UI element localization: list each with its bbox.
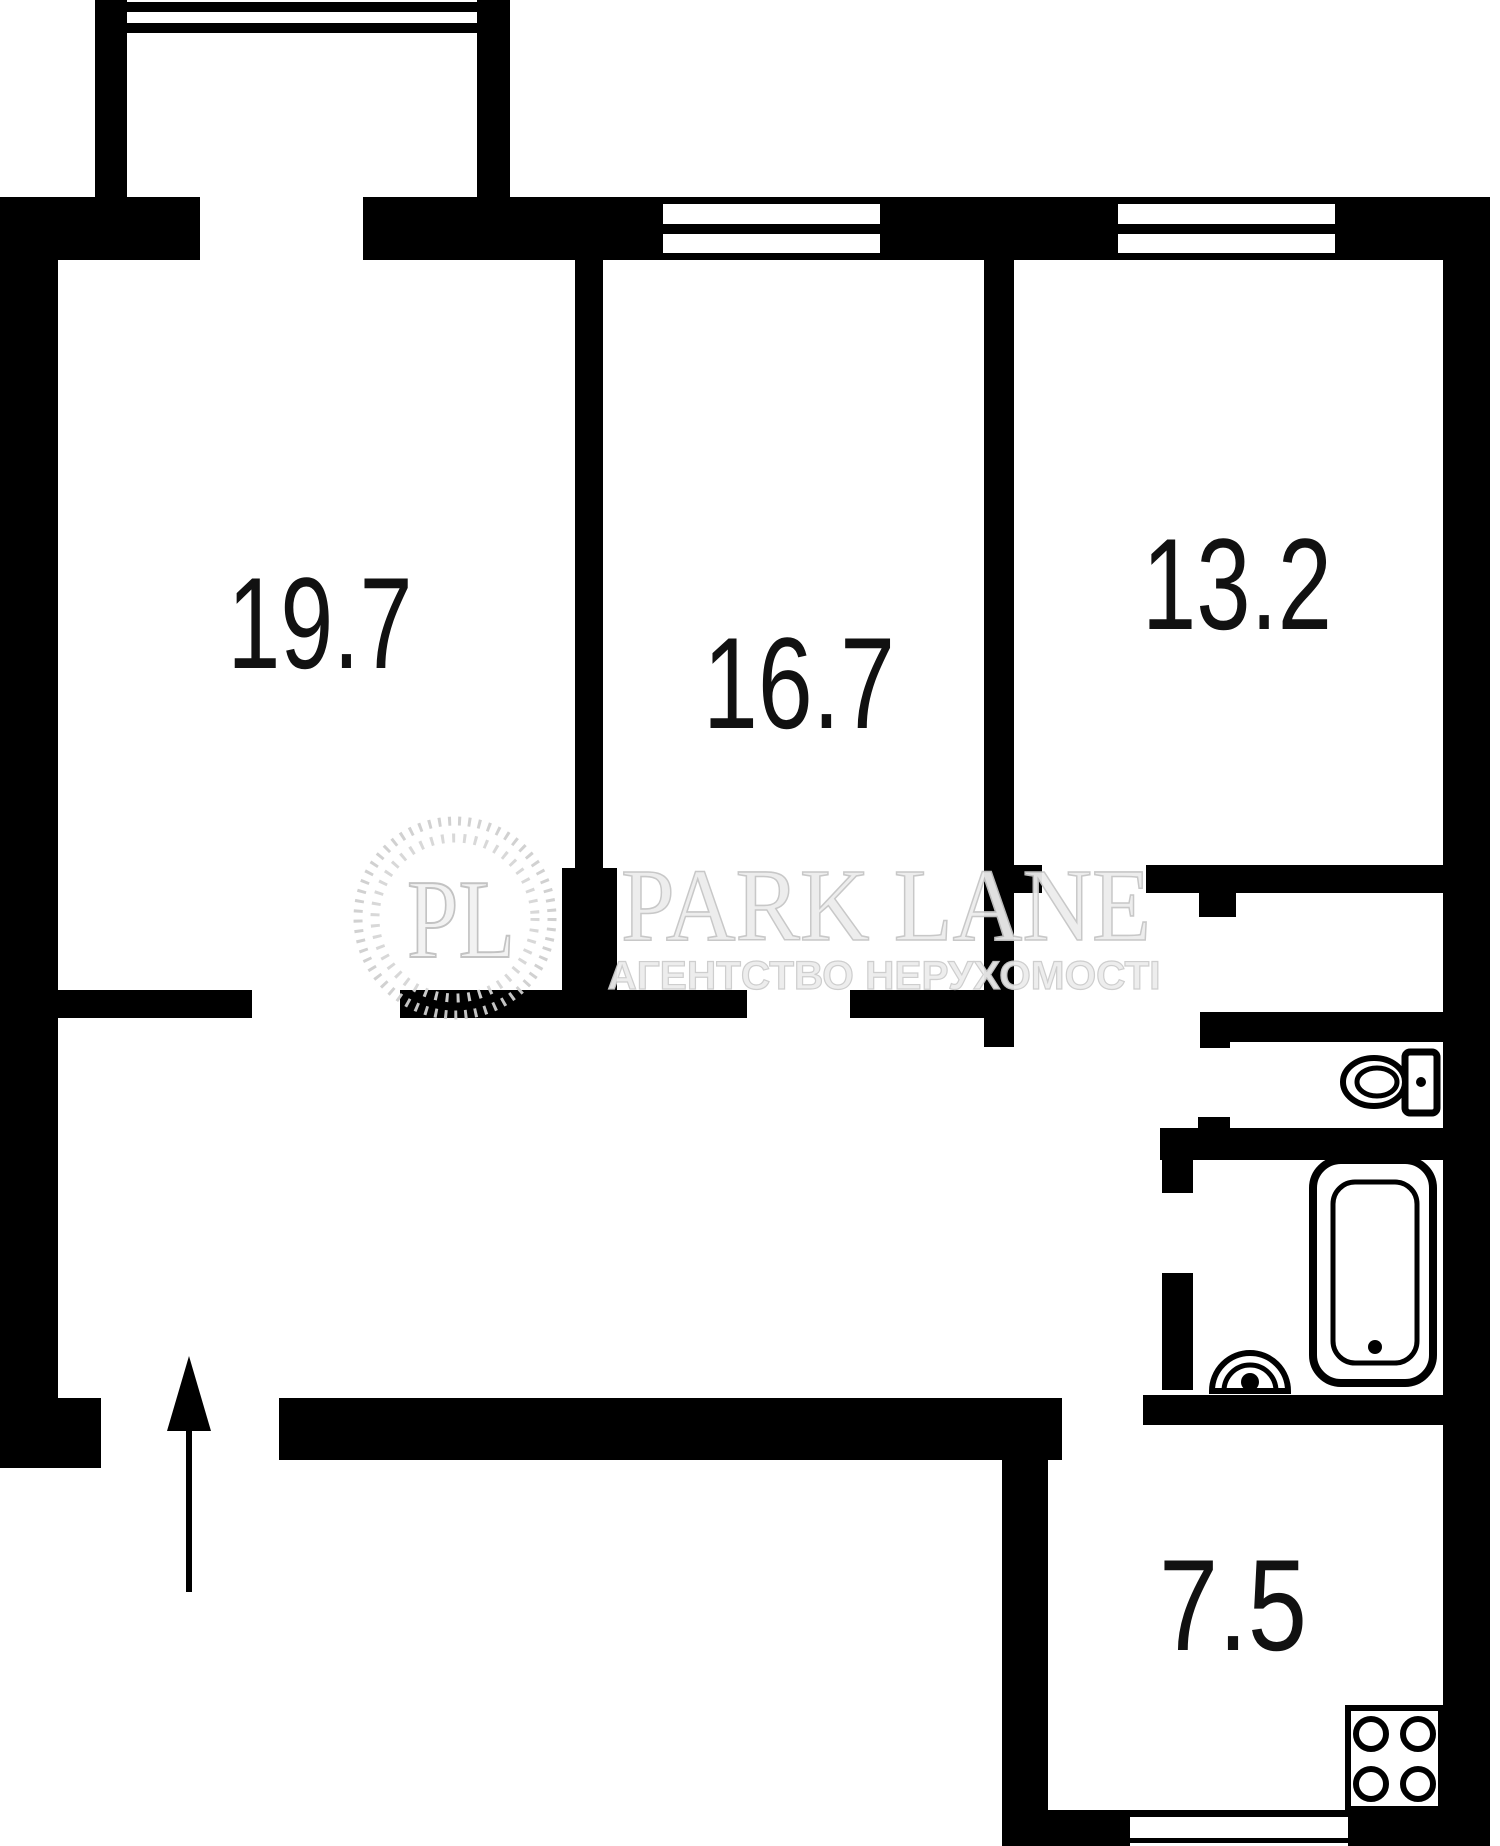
wall-bathroom-left-upper — [1162, 1160, 1193, 1193]
watermark-tagline: АГЕНТСТВО НЕРУХОМОСТІ — [608, 954, 1161, 998]
wall-corridor-top-segment-1 — [58, 990, 252, 1018]
double-window-icon — [1130, 1817, 1348, 1846]
wall-wc-bathroom-divider — [1160, 1128, 1443, 1160]
room-area-label: 19.7 — [228, 550, 413, 696]
wall-entrance-jamb — [0, 1398, 101, 1468]
watermark-brand: PARK LANE — [621, 848, 1151, 963]
door-jamb-stub — [1199, 893, 1236, 917]
floor-plan-drawing: 19.7 16.7 13.2 7.5 PL PARK LANE АГЕНТСТВ… — [0, 0, 1500, 1846]
stove-icon — [1348, 1708, 1441, 1809]
wall-top-segment-3 — [880, 197, 1118, 260]
room-area-label: 16.7 — [703, 610, 895, 756]
room-area-label: 13.2 — [1142, 511, 1332, 657]
entrance-arrow-icon — [167, 1356, 211, 1592]
wall-wc-top — [1203, 1012, 1443, 1042]
balcony-window-icon — [123, 2, 477, 33]
wall-corridor-bottom — [279, 1398, 1062, 1460]
floor-plan: 19.7 16.7 13.2 7.5 PL PARK LANE АГЕНТСТВ… — [0, 0, 1500, 1846]
wall-bathroom-left-lower — [1162, 1273, 1193, 1390]
room-area-label: 7.5 — [1159, 1532, 1307, 1678]
wall-bathroom-bottom — [1143, 1395, 1443, 1425]
watermark-initials: PL — [407, 858, 515, 982]
double-window-icon — [1118, 197, 1335, 260]
double-window-icon — [663, 197, 880, 260]
wall-kitchen-left — [1002, 1398, 1048, 1846]
wall-wc-door-jamb — [1200, 1012, 1230, 1048]
balcony — [95, 0, 510, 197]
wall-13-bottom-segment-2 — [1146, 865, 1443, 893]
wall-top-segment-2 — [363, 197, 663, 260]
toilet-icon — [1343, 1052, 1437, 1113]
wall-between-19-16 — [575, 260, 603, 868]
watermark: PL PARK LANE АГЕНТСТВО НЕРУХОМОСТІ — [358, 821, 1161, 1015]
bathtub-icon — [1313, 1160, 1433, 1383]
wall-right-outer — [1443, 197, 1490, 1846]
sink-icon — [1212, 1353, 1288, 1391]
balcony-right-wall — [477, 0, 510, 197]
wall-wc-bottom-stub — [1198, 1117, 1230, 1128]
balcony-left-wall — [95, 0, 127, 197]
wall-left-outer — [0, 197, 58, 1402]
